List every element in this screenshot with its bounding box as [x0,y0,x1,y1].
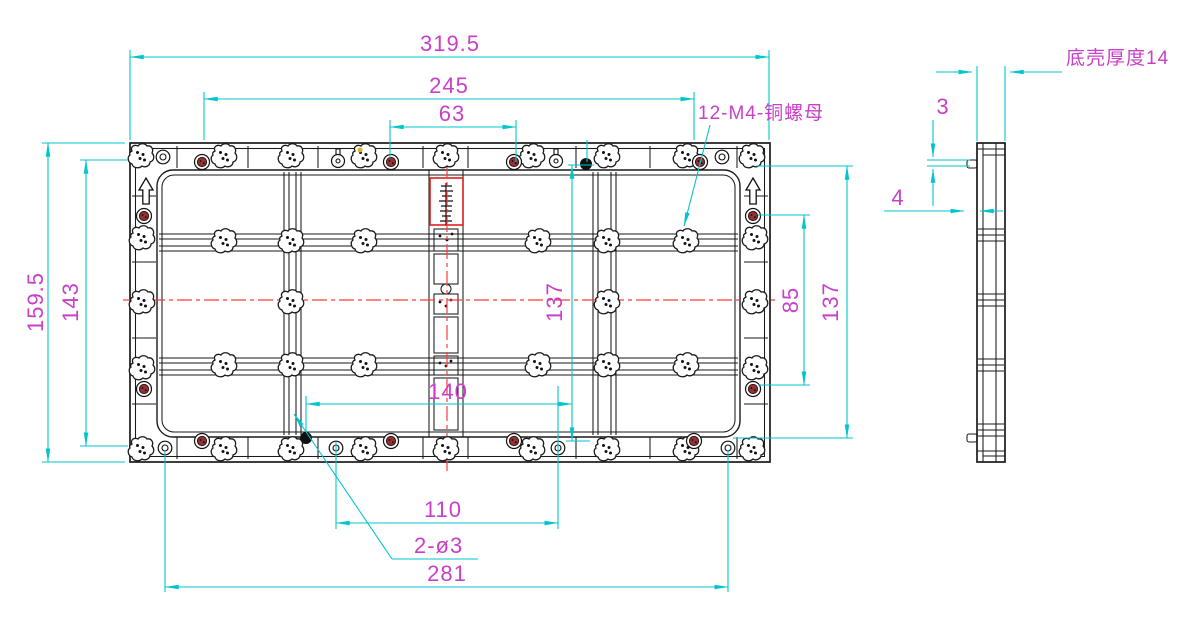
dim-side-thickness: 底壳厚度14 [936,47,1169,141]
boss-icon [351,353,376,377]
screw-icon [507,434,522,449]
dim-height-inner-label: 143 [58,282,83,322]
screw-icon [137,209,152,224]
dim-width-281-label: 281 [427,561,467,586]
boss-icon [211,229,236,253]
screw-icon [195,434,210,449]
boss-icon [433,437,458,461]
ring-icon [715,150,729,164]
part-marking [439,183,453,225]
side-tab-top [967,160,977,168]
drawing-svg: 319.5 245 63 12-M4-铜螺母 159.5 [0,0,1190,633]
screw-icon [687,434,702,449]
dim-side-3-label: 3 [936,94,949,119]
boss-icon [742,226,767,250]
screw-icon [384,155,399,170]
boss-icon [129,290,154,314]
boss-icon [594,437,619,461]
keyhole-icon [332,149,345,168]
boss-icon [278,144,303,168]
dim-height-right-label: 137 [818,282,843,322]
boss-icon [594,229,619,253]
boss-icon [278,229,303,253]
boss-icon [673,229,698,253]
dim-height-total-label: 159.5 [23,272,48,332]
boss-icon [351,229,376,253]
nut-callout-label: 12-M4-铜螺母 [698,102,824,124]
dim-height-mid: 137 [542,140,594,441]
orientation-arrow-icon [746,178,760,204]
keyhole-icon [550,149,563,168]
boss-icon [278,353,303,377]
side-thickness-label: 底壳厚度14 [1066,47,1169,69]
dim-width-140: 140 [306,379,572,432]
pin-hole-icon [580,158,592,170]
dim-width-total-label: 319.5 [420,31,480,56]
dim-side-3: 3 [927,94,970,206]
orientation-arrow-icon [139,178,153,204]
boss-icon [278,290,303,314]
screw-icon [746,382,761,397]
side-tab-bottom [967,434,977,442]
boss-icon [519,144,544,168]
dim-height-85-label: 85 [778,287,803,313]
boss-icon [742,356,767,380]
boss-icon [129,226,154,250]
grid-lines [132,146,768,459]
boss-icon [128,144,153,168]
boss-icon [594,353,619,377]
boss-icon [519,437,544,461]
dim-width-mid-label: 245 [429,73,469,98]
screw-icon [137,382,152,397]
boss-icon [433,144,458,168]
front-view [123,143,775,471]
dim-side-4: 4 [884,185,1003,211]
marker-dot [358,148,363,153]
screw-icon [384,434,399,449]
boss-icon [351,437,376,461]
dim-height-inner: 143 [58,160,128,446]
boss-icon [278,437,303,461]
dim-side-4-label: 4 [891,185,904,210]
boss-icon [129,356,154,380]
ring-icon [156,150,170,164]
boss-icon [128,437,153,461]
boss-icon [525,353,550,377]
boss-icon [739,144,764,168]
dim-width-inner-label: 63 [439,101,465,126]
screw-icon [746,209,761,224]
cad-drawing-canvas: 319.5 245 63 12-M4-铜螺母 159.5 [0,0,1190,633]
boss-icon [739,437,764,461]
screw-icon [195,155,210,170]
side-view [967,143,1005,462]
boss-icon [351,144,376,168]
holes-callout-label: 2-ø3 [414,533,463,558]
boss-icon [594,144,619,168]
fasteners [137,148,761,455]
boss-icon [742,290,767,314]
boss-icon [211,437,236,461]
dim-width-110-label: 110 [424,497,462,522]
boss-icon [594,290,619,314]
dim-height-mid-label: 137 [542,282,567,322]
dim-width-140-label: 140 [428,379,468,404]
boss-icon [211,144,236,168]
screw-icon [507,155,522,170]
dimensions: 319.5 245 63 12-M4-铜螺母 159.5 [23,31,1169,592]
boss-icon [525,229,550,253]
boss-icon [211,353,236,377]
boss-icon [673,353,698,377]
